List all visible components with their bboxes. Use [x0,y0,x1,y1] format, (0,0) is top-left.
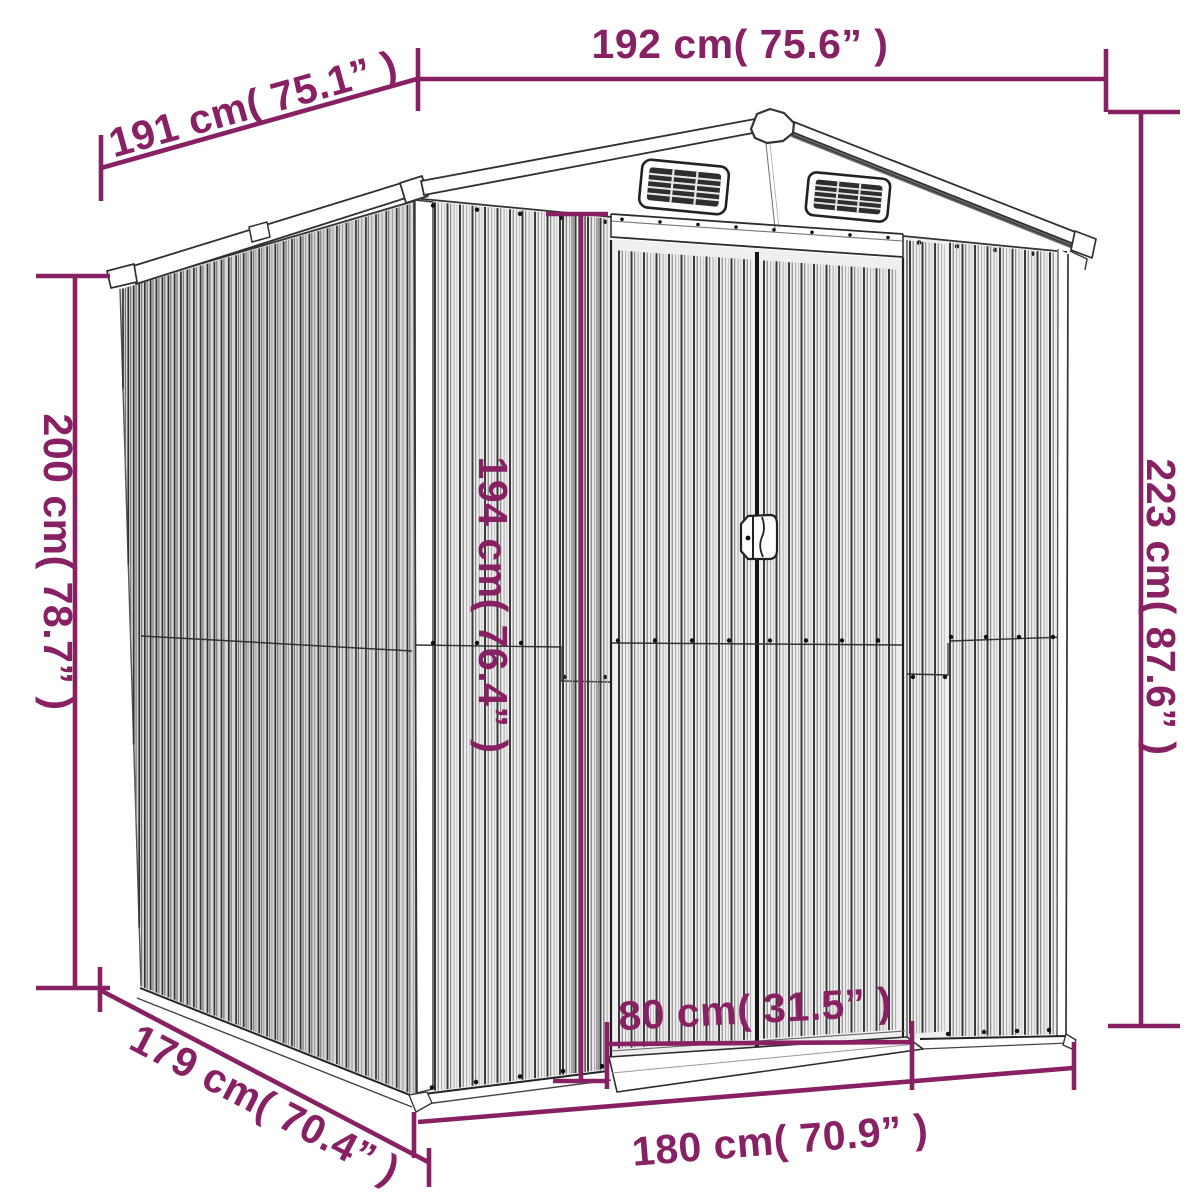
svg-text:192 cm( 75.6” ): 192 cm( 75.6” ) [592,21,889,67]
svg-text:194 cm( 76.4” ): 194 cm( 76.4” ) [470,457,516,754]
svg-text:223 cm( 87.6” ): 223 cm( 87.6” ) [1138,459,1184,756]
svg-text:200 cm( 78.7” ): 200 cm( 78.7” ) [35,414,81,711]
